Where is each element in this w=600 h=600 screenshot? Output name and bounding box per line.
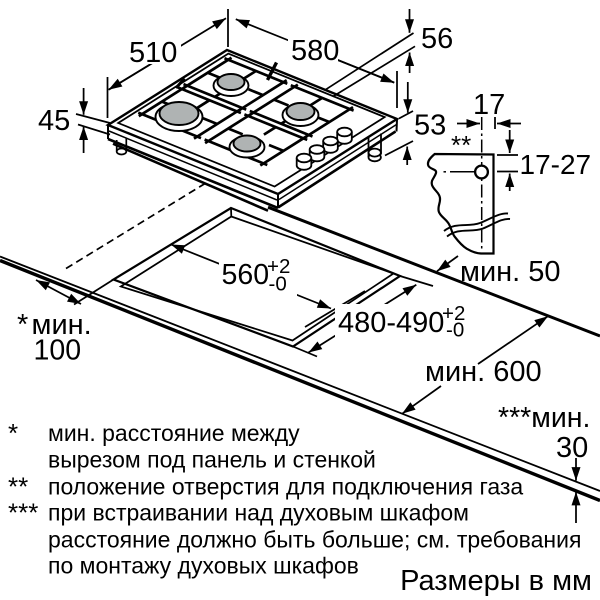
svg-text:по монтажу духовых шкафов: по монтажу духовых шкафов bbox=[48, 553, 359, 579]
svg-text:580: 580 bbox=[291, 35, 339, 67]
svg-text:17: 17 bbox=[473, 89, 505, 121]
svg-text:100: 100 bbox=[34, 335, 82, 367]
svg-text:510: 510 bbox=[129, 37, 177, 69]
svg-text:*: * bbox=[8, 418, 18, 448]
svg-text:30: 30 bbox=[556, 432, 588, 464]
svg-text:при встраивании над духовым шк: при встраивании над духовым шкафом bbox=[48, 500, 469, 526]
svg-text:-0: -0 bbox=[446, 319, 464, 342]
svg-text:53: 53 bbox=[414, 110, 446, 142]
svg-text:положение отверстия для подклю: положение отверстия для подключения газа bbox=[48, 474, 523, 500]
svg-text:**: ** bbox=[451, 130, 471, 160]
svg-text:мин. расстояние между: мин. расстояние между bbox=[48, 420, 300, 446]
svg-text:560: 560 bbox=[222, 259, 270, 291]
svg-text:***: *** bbox=[8, 498, 38, 528]
svg-text:*: * bbox=[17, 309, 28, 341]
svg-text:вырезом под панель и стенкой: вырезом под панель и стенкой bbox=[48, 447, 376, 473]
svg-text:480-490: 480-490 bbox=[338, 307, 444, 339]
svg-text:***мин.: ***мин. bbox=[498, 402, 590, 434]
svg-text:мин. 600: мин. 600 bbox=[425, 356, 542, 388]
svg-text:56: 56 bbox=[421, 23, 453, 55]
svg-text:расстояние должно быть больше;: расстояние должно быть больше; см. требо… bbox=[48, 527, 581, 553]
svg-text:45: 45 bbox=[38, 105, 70, 137]
svg-text:Размеры в мм: Размеры в мм bbox=[400, 565, 592, 597]
svg-text:-0: -0 bbox=[269, 273, 287, 296]
svg-text:17-27: 17-27 bbox=[520, 149, 592, 180]
svg-text:мин. 50: мин. 50 bbox=[460, 256, 561, 288]
